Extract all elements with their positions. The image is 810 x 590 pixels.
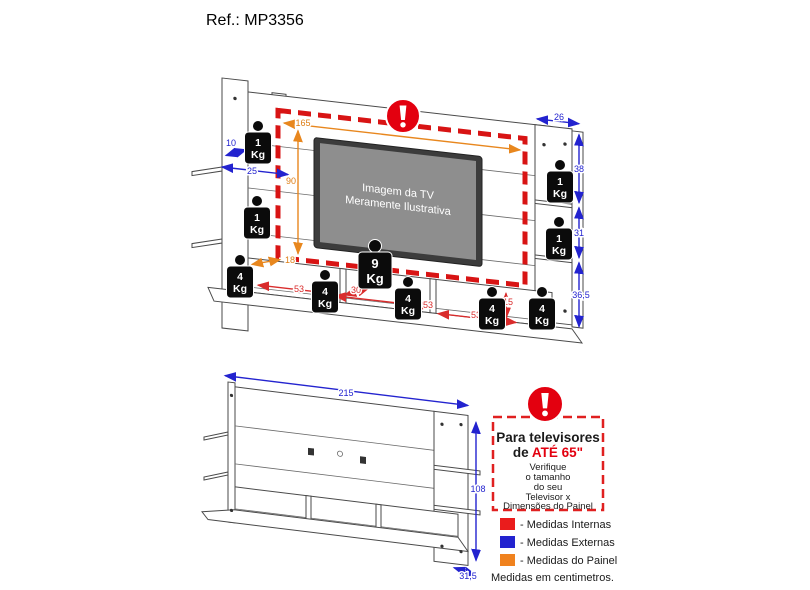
notice-title-line1: Para televisores — [496, 430, 600, 445]
weight-value: 4 — [237, 271, 243, 283]
exclamation-dot — [542, 411, 548, 417]
notice-title-prefix: de — [513, 445, 532, 460]
tv: Imagem da TV Meramente Ilustrativa — [314, 137, 482, 266]
dim-label-total-depth: 31,5 — [459, 571, 477, 581]
bracket-mark — [360, 456, 366, 464]
weight-value: 9 — [371, 256, 378, 271]
console-divider — [340, 268, 346, 303]
weight-value: 1 — [255, 137, 261, 149]
dim-label-column-seg-top: 38 — [574, 164, 584, 174]
dim-label-total-height: 108 — [470, 484, 485, 494]
legend-item-externas: - Medidas Externas — [500, 536, 615, 549]
weight-unit: Kg — [318, 298, 332, 310]
weight-value: 4 — [539, 303, 545, 315]
weight-value: 1 — [556, 233, 562, 245]
dim-label-column-seg-bottom: 36,5 — [572, 290, 590, 300]
weight-unit: Kg — [553, 188, 567, 200]
weight-unit: Kg — [251, 149, 265, 161]
dim-label-panel-height: 90 — [286, 176, 296, 186]
page-title: Ref.: MP3356 — [206, 12, 304, 29]
weight-unit: Kg — [233, 283, 247, 295]
weight-unit: Kg — [485, 315, 499, 327]
weight-unit: Kg — [250, 224, 264, 236]
dim-label-column-seg-mid: 31 — [574, 228, 584, 238]
exclamation-dot — [400, 122, 405, 127]
weight-value: 4 — [489, 303, 495, 315]
legend-label: - Medidas Internas — [520, 519, 612, 531]
left-shelf-top — [204, 429, 228, 443]
left-shelf-top — [192, 164, 222, 179]
dim-label-cubby1-width: 53 — [294, 284, 304, 294]
legend-item-painel: - Medidas do Painel — [500, 554, 617, 567]
notice-note-line: Dimensões do Painel — [503, 501, 593, 512]
dim-label-shelf-depth: 10 — [226, 138, 236, 148]
dim-label-shelf-width: 25 — [247, 166, 257, 176]
left-shelf-bottom — [192, 236, 222, 251]
legend-label: - Medidas do Painel — [520, 555, 617, 567]
legend: - Medidas Internas - Medidas Externas - … — [491, 518, 617, 584]
weight-unit: Kg — [552, 245, 566, 257]
dim-label-base-depth: 18 — [285, 255, 295, 265]
weight-value: 4 — [405, 293, 411, 305]
dim-label-cubby2-width: 53 — [423, 300, 433, 310]
legend-footnote: Medidas em centimetros. — [491, 572, 614, 584]
legend-swatch-orange — [500, 554, 515, 566]
legend-label: - Medidas Externas — [520, 537, 615, 549]
dim-label-panel-width: 165 — [295, 118, 310, 128]
legend-item-internas: - Medidas Internas — [500, 518, 612, 531]
weight-value: 1 — [557, 176, 563, 188]
dim-label-column-width: 26 — [554, 112, 564, 122]
product-measure-sheet: Ref.: MP3356 — [0, 0, 810, 590]
warning-icon — [386, 99, 420, 133]
left-side-panel — [228, 382, 235, 523]
diagram-canvas: Ref.: MP3356 — [0, 0, 810, 590]
legend-swatch-blue — [500, 536, 515, 548]
weight-unit: Kg — [535, 315, 549, 327]
weight-unit: Kg — [401, 305, 415, 317]
weight-value: 4 — [322, 286, 328, 298]
notice-title-line2: de ATÉ 65" — [513, 445, 583, 460]
bracket-mark — [308, 448, 314, 456]
left-shelf-bottom — [204, 469, 228, 483]
notice-title-highlight: ATÉ 65" — [532, 445, 583, 460]
notice-box: Para televisores de ATÉ 65" Verifique o … — [493, 386, 603, 512]
weight-unit: Kg — [366, 271, 383, 286]
dim-label-total-width: 215 — [338, 388, 353, 398]
weight-value: 1 — [254, 212, 260, 224]
legend-swatch-red — [500, 518, 515, 530]
warning-icon — [527, 386, 563, 422]
bottom-diagram-lineart — [202, 373, 480, 576]
